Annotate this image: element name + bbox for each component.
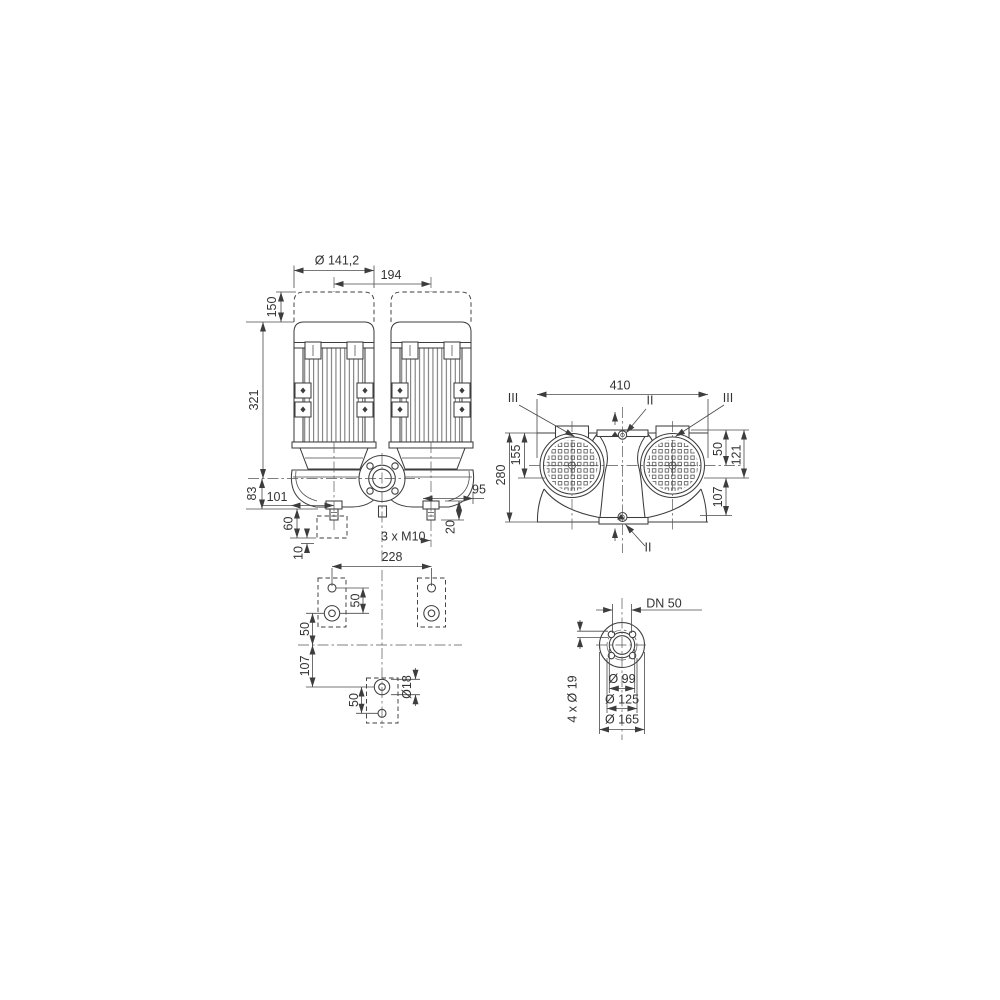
dim-demount-clearance: 150 [265, 297, 279, 318]
dim-nominal-diameter: DN 50 [646, 597, 681, 611]
dim-grout: 10 [292, 546, 306, 560]
dim-hole-gap-top: 50 [349, 594, 363, 608]
dim-hole-gap-bottom: 50 [347, 693, 361, 707]
dim-center-offset: 50 [298, 622, 312, 636]
dim-bolt-circle-diameter: Ø 125 [605, 693, 639, 707]
dim-foot-span: 228 [382, 550, 403, 564]
dim-pipe-axis: 121 [730, 445, 744, 466]
section-marker-bottom: II [645, 541, 652, 555]
dim-motor-spacing: 194 [381, 268, 402, 282]
dim-outer-diameter: Ø 165 [605, 713, 639, 727]
dim-bolt-holes: 4 x Ø 19 [566, 675, 580, 722]
dim-overall-width: 410 [610, 379, 631, 393]
label-thread-spec: 3 x M10 [381, 530, 426, 544]
section-marker-left: III [508, 391, 518, 405]
dim-left-offset: 101 [267, 490, 288, 504]
dim-rear-offset: 107 [298, 656, 312, 677]
dim-base-height: 83 [245, 487, 259, 501]
dim-rear-depth: 107 [711, 487, 725, 508]
drawing-canvas: Ø 141,2 194 150 321 83 101 95 60 [0, 0, 1000, 1000]
dim-motor-height: 321 [247, 390, 261, 411]
dim-motor-axis: 50 [711, 442, 725, 456]
section-marker-right: III [723, 391, 733, 405]
dim-right-offset: 95 [472, 483, 486, 497]
dim-hole-diameter: Ø18 [400, 675, 414, 699]
background [0, 0, 1000, 1000]
dim-front-depth: 155 [509, 445, 523, 466]
section-marker-top: II [647, 394, 654, 408]
dim-stud-length: 20 [444, 520, 458, 534]
dim-overall-depth: 280 [494, 465, 508, 486]
dim-face-diameter: Ø 99 [608, 672, 635, 686]
pump-dimension-drawing: Ø 141,2 194 150 321 83 101 95 60 [0, 0, 1000, 1000]
drain-plug [379, 506, 387, 517]
dim-motor-diameter: Ø 141,2 [315, 254, 360, 268]
dim-foot-block: 60 [282, 517, 296, 531]
